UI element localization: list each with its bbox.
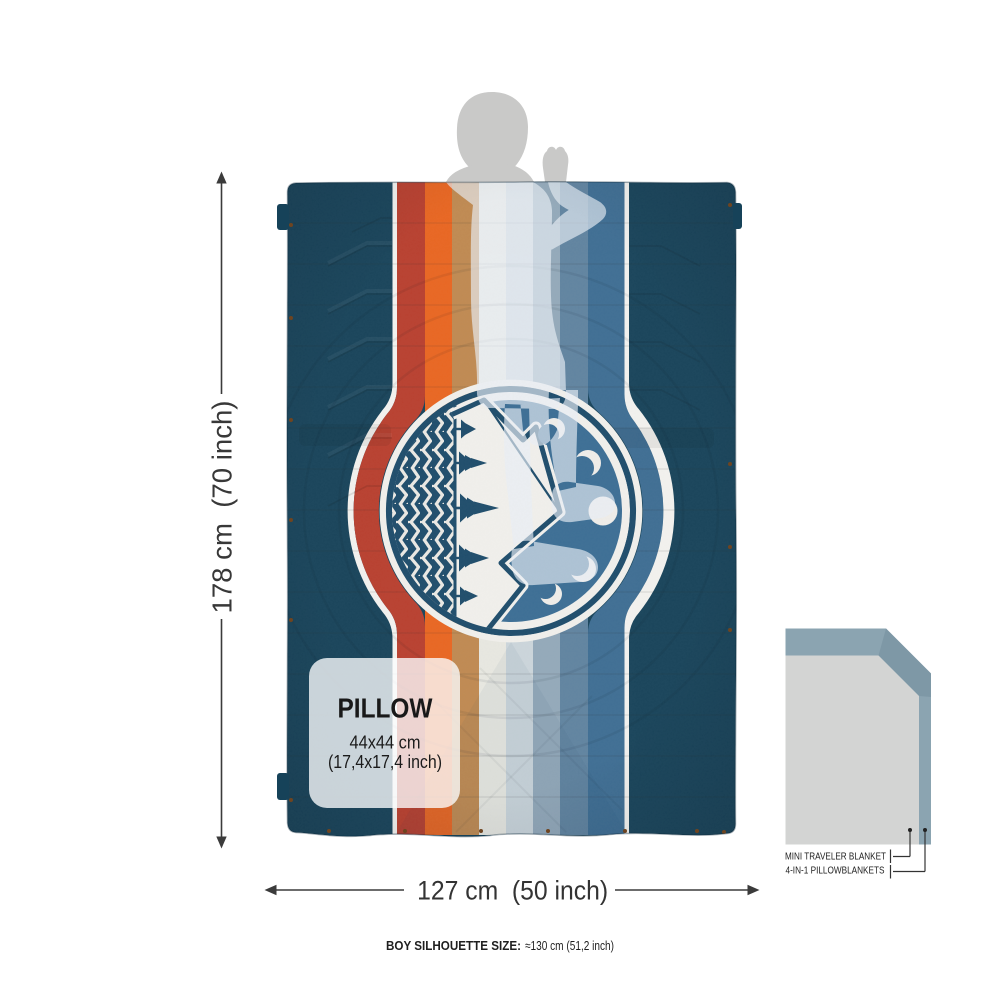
svg-text:178 cm (70 inch): 178 cm (70 inch) xyxy=(207,401,238,614)
svg-text:PILLOW: PILLOW xyxy=(338,693,433,724)
svg-text:(17,4x17,4 inch): (17,4x17,4 inch) xyxy=(328,752,442,772)
svg-text:4-IN-1 PILLOWBLANKETS: 4-IN-1 PILLOWBLANKETS xyxy=(786,865,885,877)
svg-text:44x44 cm: 44x44 cm xyxy=(350,733,421,753)
svg-text:≈130 cm (51,2 inch): ≈130 cm (51,2 inch) xyxy=(525,938,614,953)
svg-text:127 cm (50 inch): 127 cm (50 inch) xyxy=(417,875,608,905)
svg-text:BOY SILHOUETTE SIZE:: BOY SILHOUETTE SIZE: xyxy=(386,938,521,953)
svg-text:MINI TRAVELER BLANKET: MINI TRAVELER BLANKET xyxy=(785,851,886,863)
